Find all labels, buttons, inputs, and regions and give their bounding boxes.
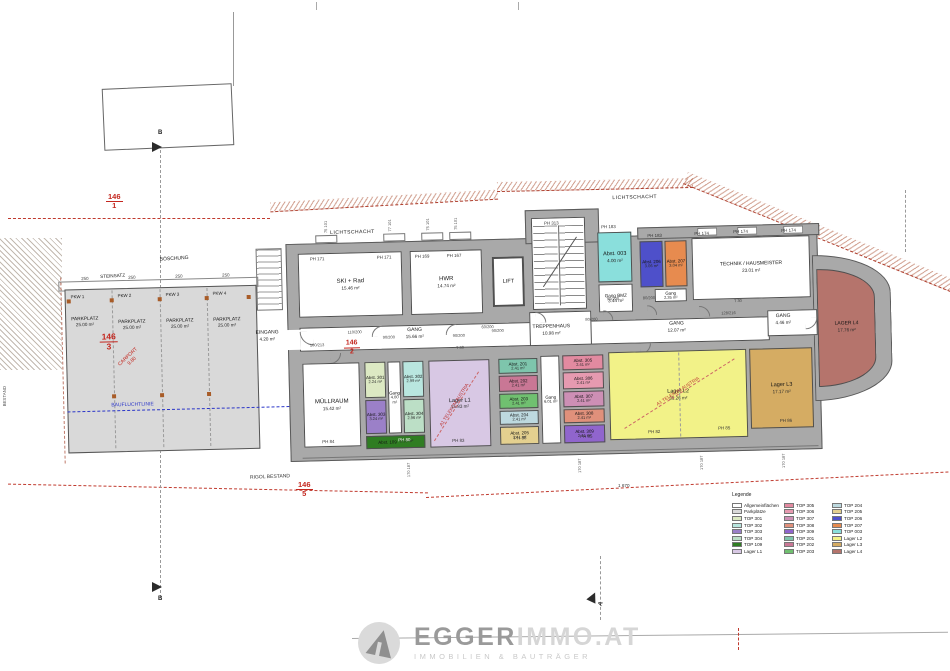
room-abst-306: Abst. 306 2.41 m² [563,371,604,389]
carport-post [205,296,209,300]
dim-bottom: 170 187 [700,452,704,470]
legend-swatch [732,529,742,534]
room-abst-203: Abst. 203 2.41 m² [499,393,538,409]
exterior-stairs [256,248,284,311]
legend-item: TOP 205 [832,509,862,516]
legend-item: TOP 305 [784,502,814,509]
stair-flight [533,225,559,306]
dim-250: 250 [128,276,135,281]
legend-item: Lager L2 [832,535,862,542]
door-t30: T 30 [456,346,464,350]
ph-label: PH 167 [447,253,462,258]
carport-post [158,297,162,301]
ph-label: PH 174 [781,228,796,233]
legend-swatch [732,509,742,514]
stall-label: PARKPLATZ25.00 m² [71,317,99,328]
room-lift: LIFT [492,256,525,307]
legend-swatch [732,503,742,508]
legend-swatch [832,542,842,547]
room-hwr: HWR 14.74 m² [410,249,484,315]
ph-label: PH 82 [648,429,660,434]
legend-swatch [784,523,794,528]
legend-swatch [784,529,794,534]
parcel-label-146-3: 146 3 [100,332,119,352]
room-gang-601: Gang 6.01 m² [540,355,561,443]
legend-swatch [784,542,794,547]
bauflucht-label: BAUFLUCHTLINIE [111,401,154,408]
legend-swatch [732,549,742,554]
gang-label: GANG12.07 m² [667,321,685,332]
stall-label: PARKPLATZ25.00 m² [166,318,194,329]
door-t30: T 30 [734,299,742,303]
room-abst-301: Abst. 301 2.24 m² [364,362,386,399]
legend-swatch [784,503,794,508]
dim-top: 77 101 [388,211,392,231]
legend-swatch [832,536,842,541]
room-abst-204: Abst. 204 2.41 m² [500,410,539,425]
stall-id: PKW 4 [213,292,227,297]
ph-label: PH 183 [647,233,662,238]
parcel-label-146-2: 146 2 [344,339,360,356]
legend-item: Parkplätze [732,509,779,516]
room-lager-l3: Lager L3 17.17 m² [749,347,814,429]
legend-item: TOP 203 [784,548,814,555]
door-dim: 80/200 [643,296,655,300]
boeschung-label: BÖSCHUNG [160,256,189,263]
dim-250: 250 [81,277,88,282]
door-dim: 90/200 [492,329,504,333]
ph-label: PH 83 [452,438,464,443]
dim-top: 75 101 [324,213,328,233]
legend-item: TOP 309 [784,528,814,535]
legend-swatch [732,516,742,521]
room-lager-l4: LAGER L4 17.76 m² [816,268,877,387]
ph-label: PH 171 [377,254,392,259]
dim-bottom: 170 187 [578,455,582,473]
logo-wordmark: EGGERIMMO.AT [414,625,641,650]
gang-label: GANG4.46 m² [775,314,791,325]
ph-label: PH 313 [544,220,559,225]
carport-post [160,393,164,397]
legend-swatch [784,536,794,541]
stall-id: PKW 2 [118,294,132,299]
ph-label: PH 84 [322,439,334,444]
eingang-label: EINGANG4.20 m² [256,330,279,341]
gang-label: GANG15.66 m² [406,328,424,339]
ph-label: PH 86 [780,418,792,423]
logo: EGGERIMMO.AT IMMOBILIEN & BAUTRÄGER [358,622,641,664]
lichtschacht-label: LICHTSCHACHT [612,195,657,202]
ph-label: PH 174 [733,229,748,234]
legend-item: TOP 308 [784,522,814,529]
dim-250: 250 [222,273,229,278]
door-dim: 90/200 [453,334,465,338]
legend-swatch [784,509,794,514]
legend-title: Legende [732,492,751,498]
room-technik-hausmeister: TECHNIK / HAUSMEISTER 23.01 m² [691,235,810,300]
dim-top: 75 101 [454,210,458,230]
ph-label: PH 80 [398,437,410,442]
site-plan-group: BÖSCHUNG STEINSATZ 250 250 250 250 PKW 1… [0,0,950,671]
door-dim: 80/200 [585,317,597,321]
stall-id: PKW 3 [166,293,180,298]
door-dim: 90/200 [607,297,619,301]
door-dim: 110/200 [348,330,362,334]
legend-swatch [832,549,842,554]
legend-column-1: Allgemeinflächen Parkplätze TOP 301 TOP … [732,502,779,555]
stall-label: PARKPLATZ25.00 m² [118,320,146,331]
door-dim: 128/216 [721,311,736,315]
legend-column-3: TOP 204 TOP 205 TOP 206 TOP 207 TOP 003 … [832,502,862,555]
ph-label: PH 171 [310,256,325,261]
legend-item: TOP 207 [832,522,862,529]
legend-swatch [784,516,794,521]
legend: Legende Allgemeinflächen Parkplätze TOP … [732,492,872,562]
legend-swatch [832,516,842,521]
legend-swatch [832,503,842,508]
carport-post [112,394,116,398]
ph-label: PH 85 [580,434,592,439]
legend-item: Lager L1 [732,548,779,555]
legend-item: TOP 303 [732,528,779,535]
room-abst-109: Abst. 109 3.53 m² [366,435,425,449]
lightshaft-box [421,232,443,241]
legend-swatch [732,542,742,547]
stall-id: PKW 1 [71,295,85,300]
legend-item: TOP 109 [732,542,779,549]
legend-swatch [784,549,794,554]
legend-item: TOP 306 [784,509,814,516]
legend-item: TOP 202 [784,542,814,549]
legend-item: Lager L4 [832,548,862,555]
ph-label: PH 174 [694,231,709,236]
carport-post [207,392,211,396]
room-abst-305: Abst. 305 2.41 m² [562,354,603,370]
room-muellraum: MÜLLRAUM 15.42 m² [302,362,361,447]
room-abst-307: Abst. 307 2.41 m² [563,390,604,407]
logo-mark-icon [358,622,400,664]
logo-tagline: IMMOBILIEN & BAUTRÄGER [414,652,641,661]
stall-label: PARKPLATZ25.00 m² [213,317,241,328]
carport-post [110,298,114,302]
ph-label: PH 85 [718,425,730,430]
lightshaft-box [383,233,405,242]
ph-label: PH 88 [514,435,526,440]
legend-item: TOP 304 [732,535,779,542]
legend-item: TOP 204 [832,502,862,509]
room-abst-201: Abst. 201 2.41 m² [498,358,537,374]
stair-flight [559,225,585,306]
room-abst-206: Abst. 206 3.06 m² [639,241,663,288]
ph-label: PH 169 [415,254,430,259]
entrance-gap [285,330,301,350]
steinsatz-label: STEINSATZ [100,273,125,280]
room-abst-303: Abst. 303 3.24 m² [365,400,387,435]
legend-item: TOP 206 [832,515,862,522]
treppenhaus-label: TREPPENHAUS10.98 m² [532,324,570,335]
room-abst-202: Abst. 202 2.41 m² [499,375,538,392]
door-dim: 90/200 [383,335,395,339]
legend-swatch [832,529,842,534]
legend-item: Allgemeinflächen [732,502,779,509]
legend-item: TOP 201 [784,535,814,542]
legend-swatch [832,509,842,514]
dim-bottom: 170 187 [407,459,411,477]
legend-item: Lager L3 [832,542,862,549]
ph-label: PH 183 [601,224,616,229]
room-abst-304: Abst. 304 2.96 m² [403,399,425,434]
legend-item: TOP 003 [832,528,862,535]
legend-item: TOP 302 [732,522,779,529]
dim-bottom: 170 187 [782,450,786,468]
floor-plan-sheet: 146 1 B B A RIGOL BESTAND 146 5 1 670 BE… [0,0,950,671]
room-gang-235: Gang 2.35 m² [655,288,687,302]
dim-250: 250 [175,275,182,280]
lightshaft-box [449,232,471,241]
carport-post [247,295,251,299]
boundary-dash [738,628,739,650]
room-gang-400: Gang 4.00 m² [387,361,402,433]
legend-swatch [732,536,742,541]
legend-column-2: TOP 305 TOP 306 TOP 307 TOP 308 TOP 309 … [784,502,814,555]
legend-item: TOP 307 [784,515,814,522]
room-abst-003: Abst. 003 4.00 m² [597,232,632,283]
room-abst-302: Abst. 302 2.99 m² [402,361,424,398]
room-abst-207: Abst. 207 3.04 m² [664,240,687,287]
legend-swatch [832,523,842,528]
door-dim: 100/213 [310,343,325,347]
lichtschacht-label: LICHTSCHACHT [330,230,375,237]
legend-swatch [732,523,742,528]
room-abst-308: Abst. 308 2.41 m² [564,408,605,423]
legend-item: TOP 301 [732,515,779,522]
dim-top: 75 101 [426,211,430,231]
